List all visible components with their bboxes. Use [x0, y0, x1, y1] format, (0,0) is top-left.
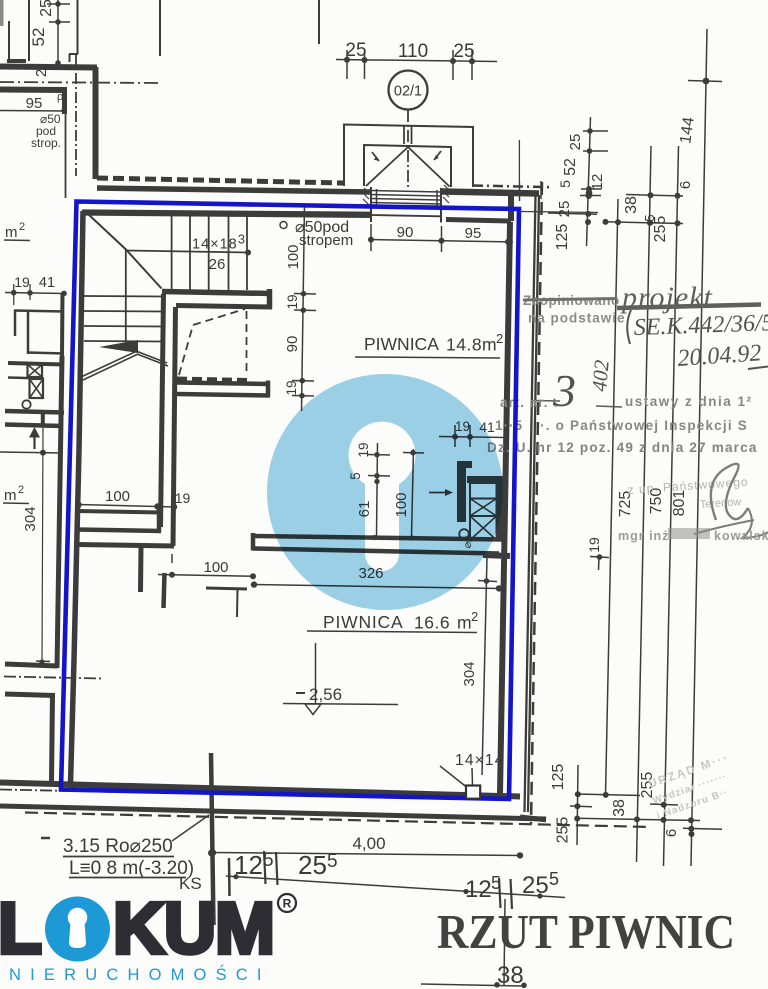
svg-text:m: m	[482, 335, 497, 355]
svg-text:25: 25	[298, 850, 327, 880]
svg-text:2: 2	[19, 221, 25, 233]
svg-text:52: 52	[29, 28, 48, 47]
svg-text:m: m	[4, 487, 17, 504]
svg-text:m: m	[5, 224, 18, 241]
svg-text:·. o Państwowej Inspekcji S: ·. o Państwowej Inspekcji S	[540, 418, 748, 433]
svg-text:SE.K.442/36/5: SE.K.442/36/5	[633, 310, 768, 341]
svg-text:R: R	[283, 897, 292, 911]
svg-text:95: 95	[26, 95, 43, 112]
svg-text:100: 100	[105, 488, 130, 505]
svg-text:3.15 Ro⌀250: 3.15 Ro⌀250	[63, 836, 173, 857]
svg-text:26: 26	[209, 256, 226, 273]
svg-text:2: 2	[18, 484, 24, 496]
svg-text:90: 90	[284, 336, 301, 353]
svg-text:41: 41	[39, 275, 55, 291]
svg-text:kowalsk: kowalsk	[714, 529, 768, 543]
svg-text:38: 38	[611, 799, 628, 817]
svg-text:5: 5	[491, 873, 501, 893]
svg-text:38: 38	[623, 196, 640, 214]
svg-text:6: 6	[663, 829, 680, 837]
svg-text:19: 19	[586, 537, 602, 553]
svg-text:6: 6	[677, 181, 694, 189]
svg-text:L: L	[0, 889, 42, 969]
svg-text:255: 255	[555, 817, 572, 844]
svg-text:stropem: stropem	[299, 232, 353, 249]
svg-text:25: 25	[567, 134, 584, 151]
svg-text:14.8: 14.8	[446, 335, 482, 355]
svg-text:125: 125	[550, 764, 567, 791]
svg-text:2: 2	[471, 609, 478, 624]
svg-text:KUM: KUM	[113, 889, 274, 969]
svg-text:5: 5	[263, 850, 274, 871]
svg-text:art. ar. :: art. ar. :	[500, 395, 559, 410]
svg-text:2: 2	[496, 331, 503, 346]
svg-text:14×14: 14×14	[455, 752, 505, 769]
svg-text:19: 19	[14, 274, 30, 290]
svg-text:12: 12	[589, 174, 606, 191]
svg-text:19: 19	[356, 442, 371, 457]
svg-text:PIWNICA: PIWNICA	[323, 612, 403, 632]
svg-text:25: 25	[556, 201, 573, 218]
svg-text:2: 2	[33, 69, 50, 77]
svg-text:RZUT PIWNIC: RZUT PIWNIC	[437, 904, 735, 959]
svg-text:strop.: strop.	[31, 136, 61, 150]
svg-text:02/1: 02/1	[394, 84, 422, 100]
svg-text:19: 19	[284, 380, 299, 395]
svg-text:NIERUCHOMOŚCI: NIERUCHOMOŚCI	[9, 965, 271, 984]
svg-text:5: 5	[327, 851, 338, 872]
svg-text:38: 38	[497, 962, 524, 989]
svg-text:25: 25	[345, 40, 366, 61]
svg-text:ρ: ρ	[57, 91, 63, 103]
svg-text:5: 5	[549, 869, 559, 889]
svg-text:2,56: 2,56	[309, 685, 342, 704]
svg-text:5: 5	[557, 180, 573, 188]
svg-text:PIWNICA: PIWNICA	[364, 334, 439, 354]
svg-text:12: 12	[465, 876, 492, 903]
svg-text:125: 125	[554, 224, 571, 251]
svg-text:90: 90	[397, 224, 414, 241]
svg-text:16.6: 16.6	[414, 613, 450, 633]
svg-text:110: 110	[398, 41, 428, 62]
svg-text:52: 52	[562, 158, 579, 176]
svg-text:1··5: 1··5	[495, 418, 523, 433]
svg-text:25: 25	[453, 41, 474, 62]
svg-text:19: 19	[175, 490, 191, 506]
svg-text:L≡0 8 m(-3.20): L≡0 8 m(-3.20)	[69, 858, 194, 879]
svg-text:na podstawie: na podstawie	[528, 311, 626, 326]
svg-text:Dz. U. nr 12 poz. 49 z dnia 27: Dz. U. nr 12 poz. 49 z dnia 27 marca	[487, 440, 758, 455]
svg-text:mgr inż: mgr inż	[618, 529, 669, 543]
svg-text:19: 19	[285, 294, 300, 309]
svg-text:304: 304	[22, 506, 39, 531]
svg-text:ustawy z dnia 1²: ustawy z dnia 1²	[625, 394, 753, 409]
svg-text:3: 3	[238, 233, 245, 247]
svg-text:402: 402	[587, 358, 614, 392]
svg-text:4,00: 4,00	[352, 834, 385, 853]
svg-text:m: m	[457, 613, 472, 633]
svg-text:25: 25	[38, 0, 55, 17]
svg-text:25: 25	[522, 872, 549, 899]
svg-text:304: 304	[461, 661, 478, 686]
svg-text:14×18: 14×18	[192, 237, 238, 253]
svg-text:95: 95	[465, 225, 482, 242]
svg-text:12: 12	[234, 850, 263, 880]
svg-text:100: 100	[203, 559, 228, 576]
